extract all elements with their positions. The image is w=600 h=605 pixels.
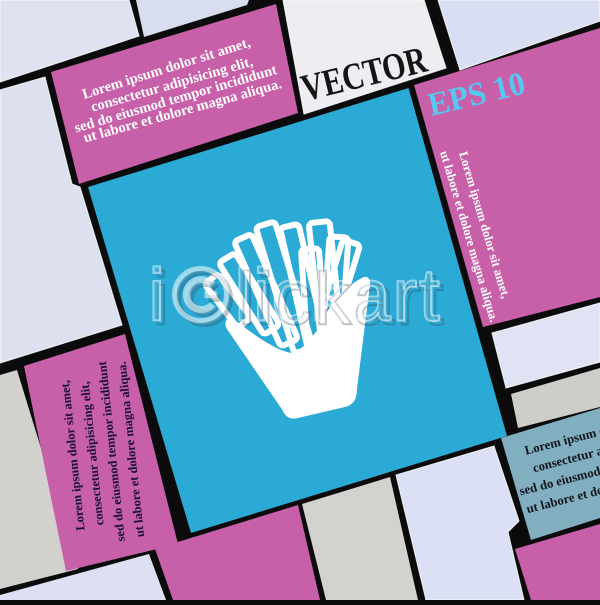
svg-text:lickart: lickart	[236, 255, 443, 338]
svg-text:i: i	[150, 255, 166, 338]
